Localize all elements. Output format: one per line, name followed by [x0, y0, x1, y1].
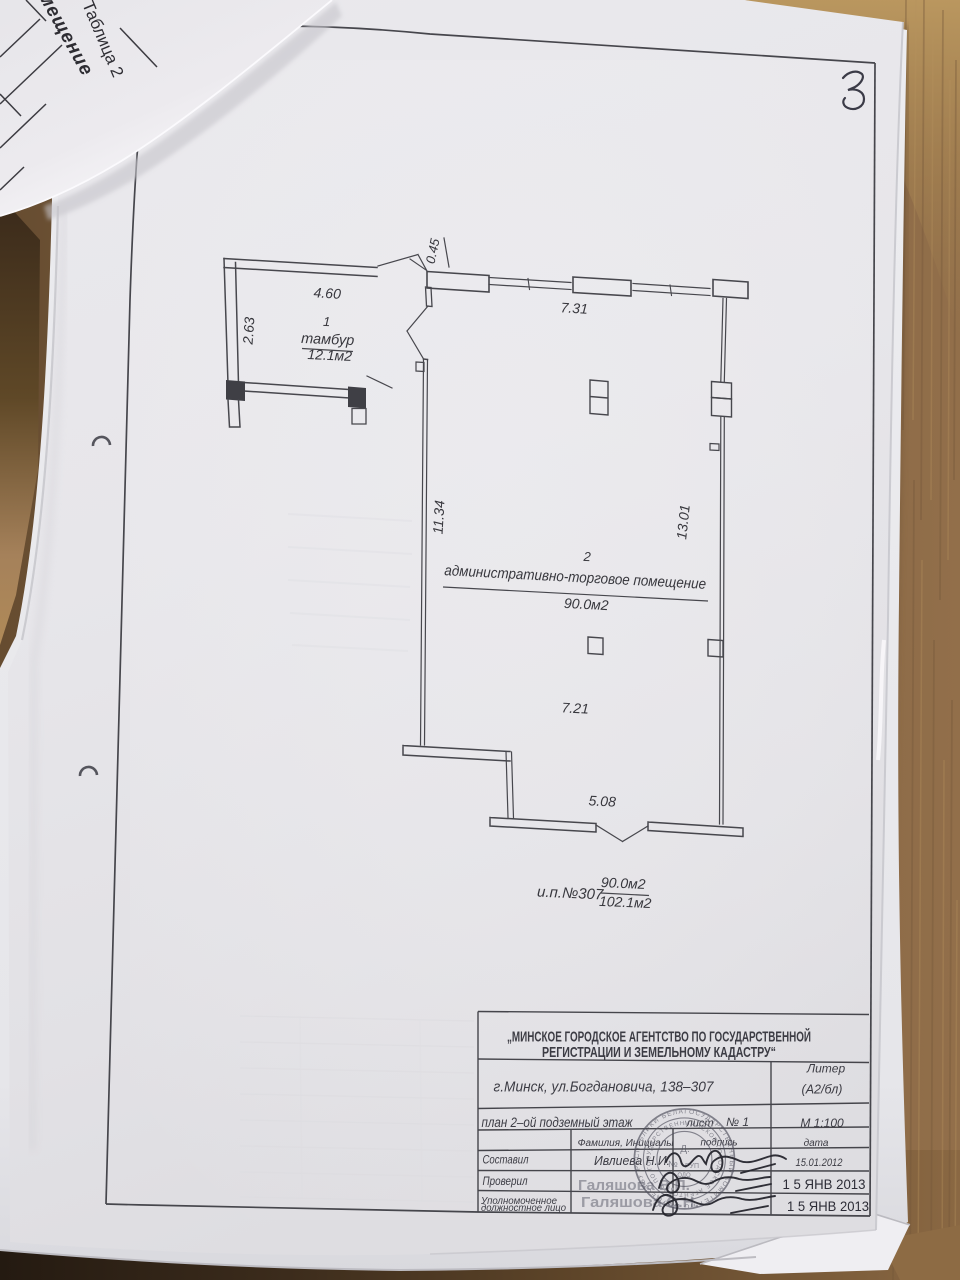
svg-text:2: 2: [582, 549, 592, 564]
svg-text:12.1м2: 12.1м2: [307, 346, 353, 364]
svg-text:М 1:100: М 1:100: [800, 1116, 844, 1130]
svg-text:15.01.2012: 15.01.2012: [796, 1157, 843, 1169]
svg-text:г.Минск, ул.Богдановича, 138–3: г.Минск, ул.Богдановича, 138–307: [494, 1079, 715, 1096]
svg-text:1: 1: [323, 314, 331, 329]
svg-text:Литер: Литер: [806, 1062, 846, 1076]
svg-text:план 2–ой подземный этаж: план 2–ой подземный этаж: [482, 1115, 634, 1130]
svg-text:1 5 ЯНВ 2013: 1 5 ЯНВ 2013: [783, 1177, 866, 1192]
svg-text:№ 1: № 1: [726, 1115, 749, 1129]
svg-text:Ивлиева Н.И.: Ивлиева Н.И.: [594, 1154, 670, 1168]
svg-text:4.60: 4.60: [313, 284, 341, 302]
svg-text:7.31: 7.31: [560, 299, 588, 317]
svg-text:Проверил: Проверил: [483, 1174, 528, 1188]
svg-text:11.34: 11.34: [429, 500, 447, 535]
svg-text:1 5 ЯНВ 2013: 1 5 ЯНВ 2013: [787, 1199, 869, 1214]
svg-text:2.63: 2.63: [240, 316, 258, 346]
svg-text:5.08: 5.08: [588, 792, 616, 809]
svg-text:90.0м2: 90.0м2: [564, 595, 610, 613]
svg-text:и.п.№307: и.п.№307: [537, 884, 605, 904]
svg-text:Составил: Составил: [483, 1153, 529, 1167]
svg-text:(А2/бл): (А2/бл): [802, 1083, 843, 1097]
svg-text:РЕГИСТРАЦИИ И ЗЕМЕЛЬНОМУ КАДАС: РЕГИСТРАЦИИ И ЗЕМЕЛЬНОМУ КАДАСТРУ“: [542, 1044, 776, 1061]
svg-text:„МИНСКОЕ ГОРОДСКОЕ АГЕНТСТВО П: „МИНСКОЕ ГОРОДСКОЕ АГЕНТСТВО ПО ГОСУДАРС…: [507, 1028, 811, 1046]
svg-text:90.0м2: 90.0м2: [601, 874, 647, 892]
svg-text:№: №: [668, 1159, 678, 1169]
svg-text:7.21: 7.21: [561, 699, 589, 716]
svg-text:должностное лицо: должностное лицо: [481, 1203, 566, 1214]
svg-text:102.1м2: 102.1м2: [599, 893, 652, 911]
svg-text:Д.: Д.: [680, 1144, 690, 1155]
svg-text:дата: дата: [804, 1138, 829, 1149]
